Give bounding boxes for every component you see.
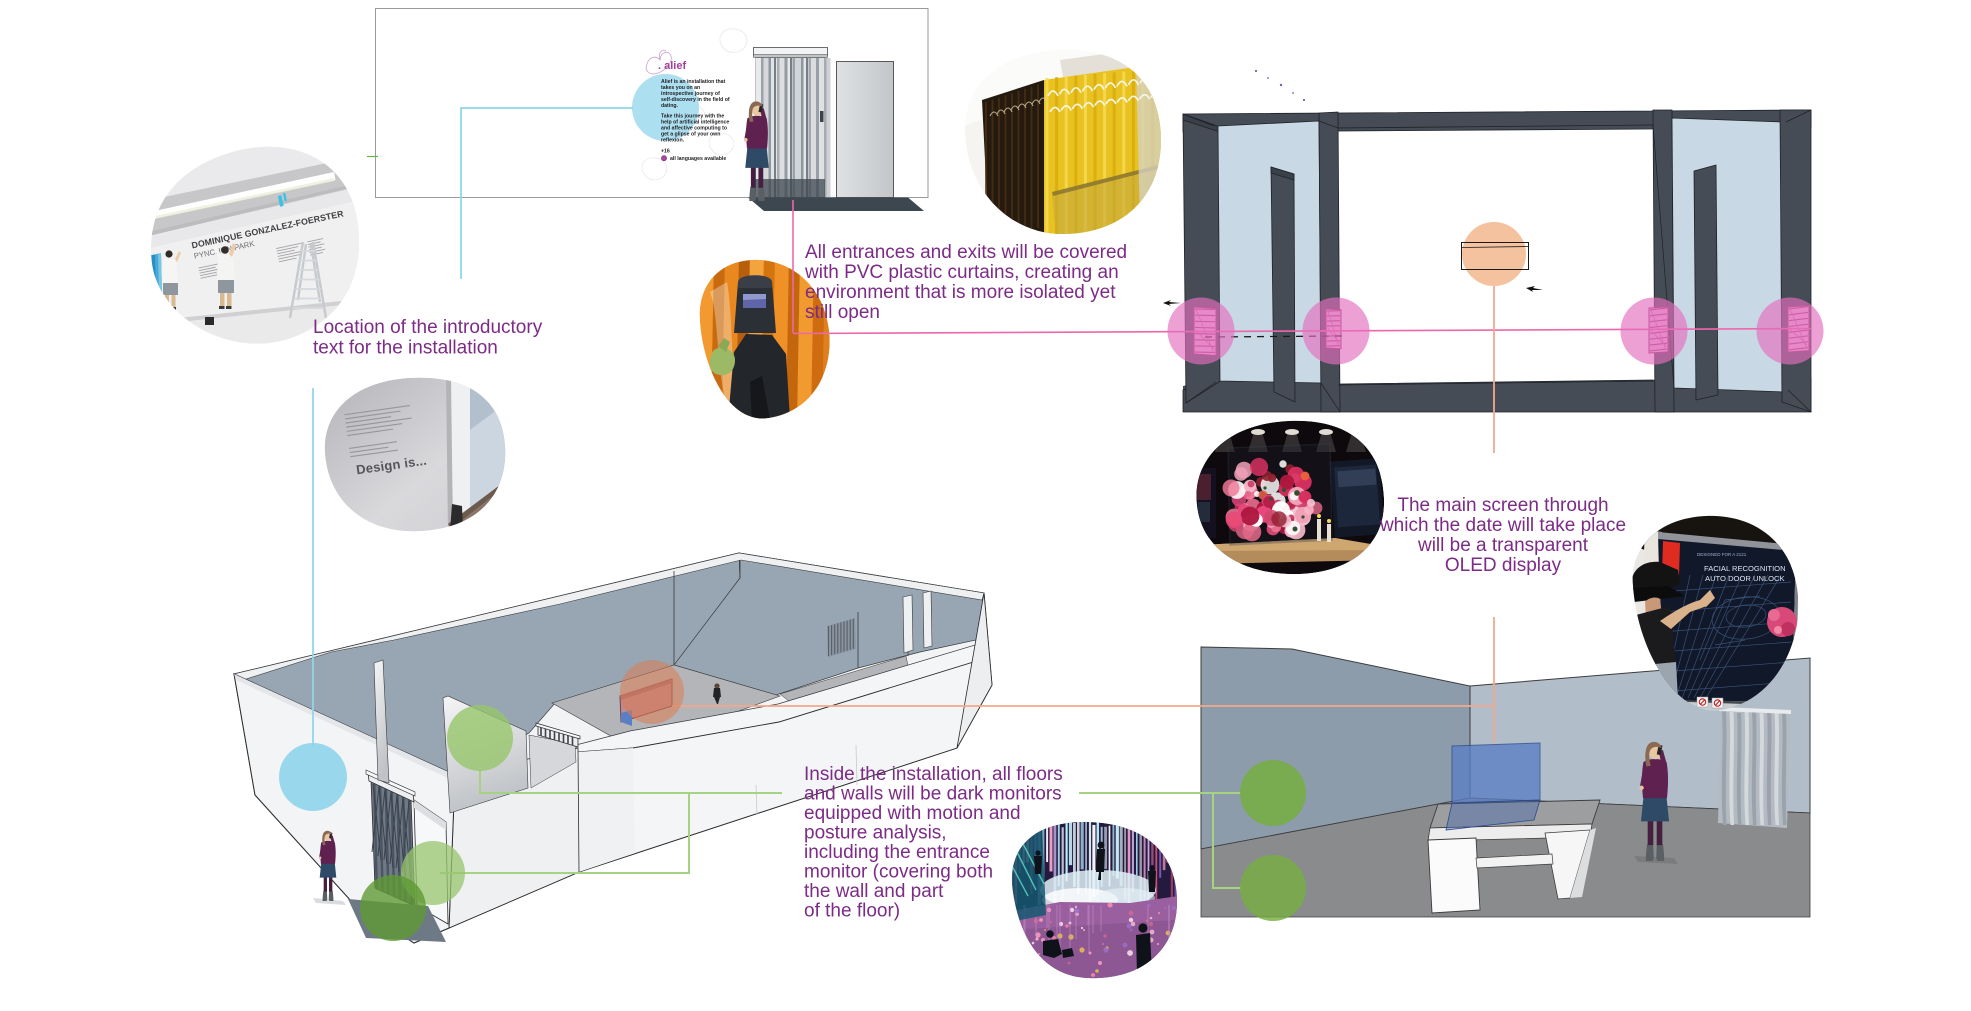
svg-text:all languages available: all languages available xyxy=(670,156,726,162)
svg-text:the wall and part: the wall and part xyxy=(804,881,944,902)
svg-text:All entrances and exits will b: All entrances and exits will be covered xyxy=(805,242,1127,263)
svg-text:including the entrance: including the entrance xyxy=(804,842,990,863)
svg-text:Location of the introductory: Location of the introductory xyxy=(313,317,543,338)
svg-text:will be a transparent: will be a transparent xyxy=(1417,535,1589,556)
svg-text:+16: +16 xyxy=(661,149,670,155)
svg-text:environment that is more isola: environment that is more isolated yet xyxy=(805,282,1116,303)
svg-text:monitor (covering both: monitor (covering both xyxy=(804,862,993,883)
svg-text:posture analysis,: posture analysis, xyxy=(804,823,947,844)
svg-text:and walls will be dark monitor: and walls will be dark monitors xyxy=(804,784,1062,805)
svg-text:text for the installation: text for the installation xyxy=(313,338,498,359)
svg-text:still open: still open xyxy=(805,302,880,323)
svg-text:with PVC plastic curtains, cre: with PVC plastic curtains, creating an xyxy=(804,262,1119,283)
svg-text:of the floor): of the floor) xyxy=(804,901,900,922)
svg-text:dating.: dating. xyxy=(661,103,679,109)
svg-text:. alief: . alief xyxy=(658,60,686,72)
svg-text:AUTO DOOR UNLOCK: AUTO DOOR UNLOCK xyxy=(1705,574,1785,583)
svg-text:equipped with motion and: equipped with motion and xyxy=(804,803,1021,824)
svg-text:The main screen through: The main screen through xyxy=(1397,495,1608,516)
svg-text:which the date will take place: which the date will take place xyxy=(1379,515,1626,536)
svg-text:Inside the installation, all f: Inside the installation, all floors xyxy=(804,764,1063,785)
svg-text:OLED display: OLED display xyxy=(1445,555,1562,576)
svg-text:FACIAL RECOGNITION: FACIAL RECOGNITION xyxy=(1704,564,1786,573)
svg-text:reflexion.: reflexion. xyxy=(661,138,685,144)
svg-text:DESIGNED FOR A 2121: DESIGNED FOR A 2121 xyxy=(1697,552,1747,557)
